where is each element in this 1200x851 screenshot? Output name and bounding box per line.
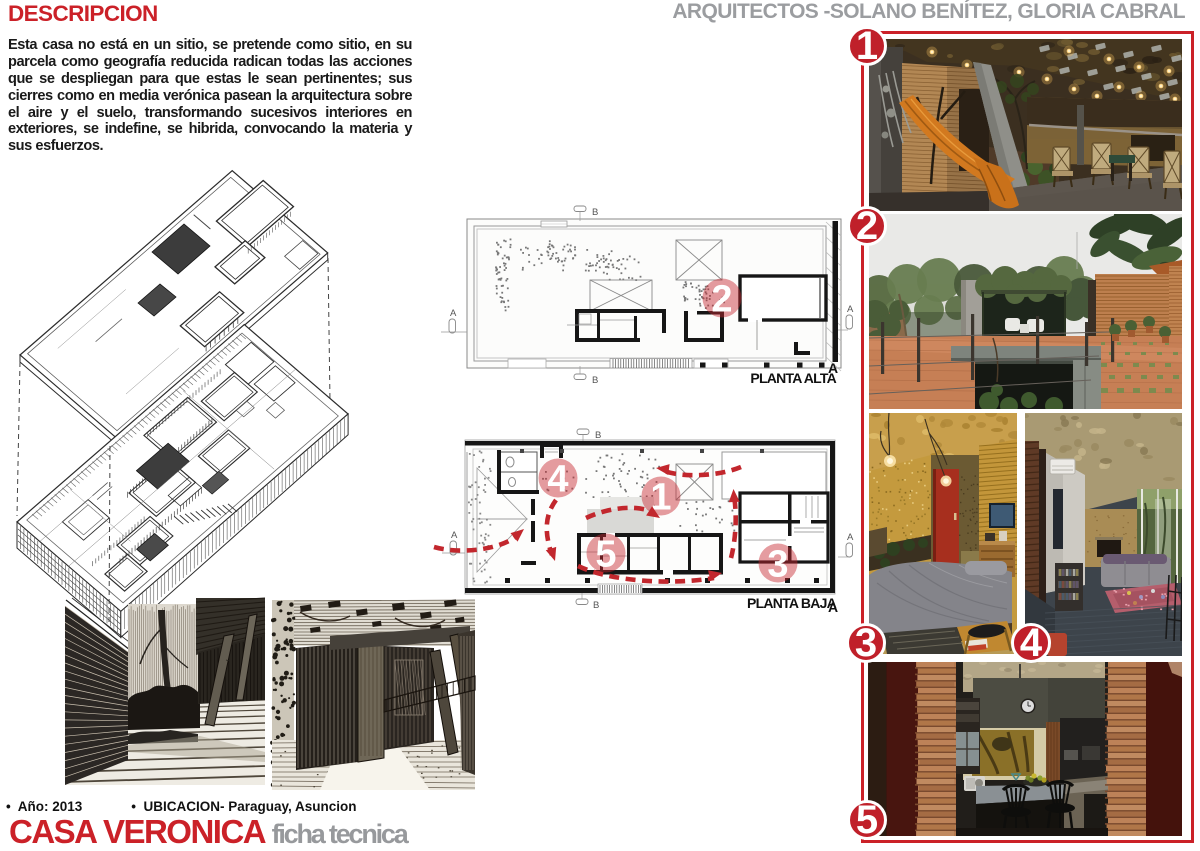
svg-text:3: 3 xyxy=(767,544,788,586)
svg-text:B: B xyxy=(592,375,598,386)
svg-text:A: A xyxy=(847,532,854,543)
svg-text:2: 2 xyxy=(711,279,732,321)
svg-text:B: B xyxy=(595,430,601,441)
svg-text:A: A xyxy=(451,530,458,541)
svg-text:A: A xyxy=(847,304,854,315)
svg-text:4: 4 xyxy=(547,459,568,501)
svg-text:B: B xyxy=(593,600,599,611)
svg-text:B: B xyxy=(592,207,598,218)
svg-text:5: 5 xyxy=(595,534,616,576)
svg-text:A: A xyxy=(450,308,457,319)
